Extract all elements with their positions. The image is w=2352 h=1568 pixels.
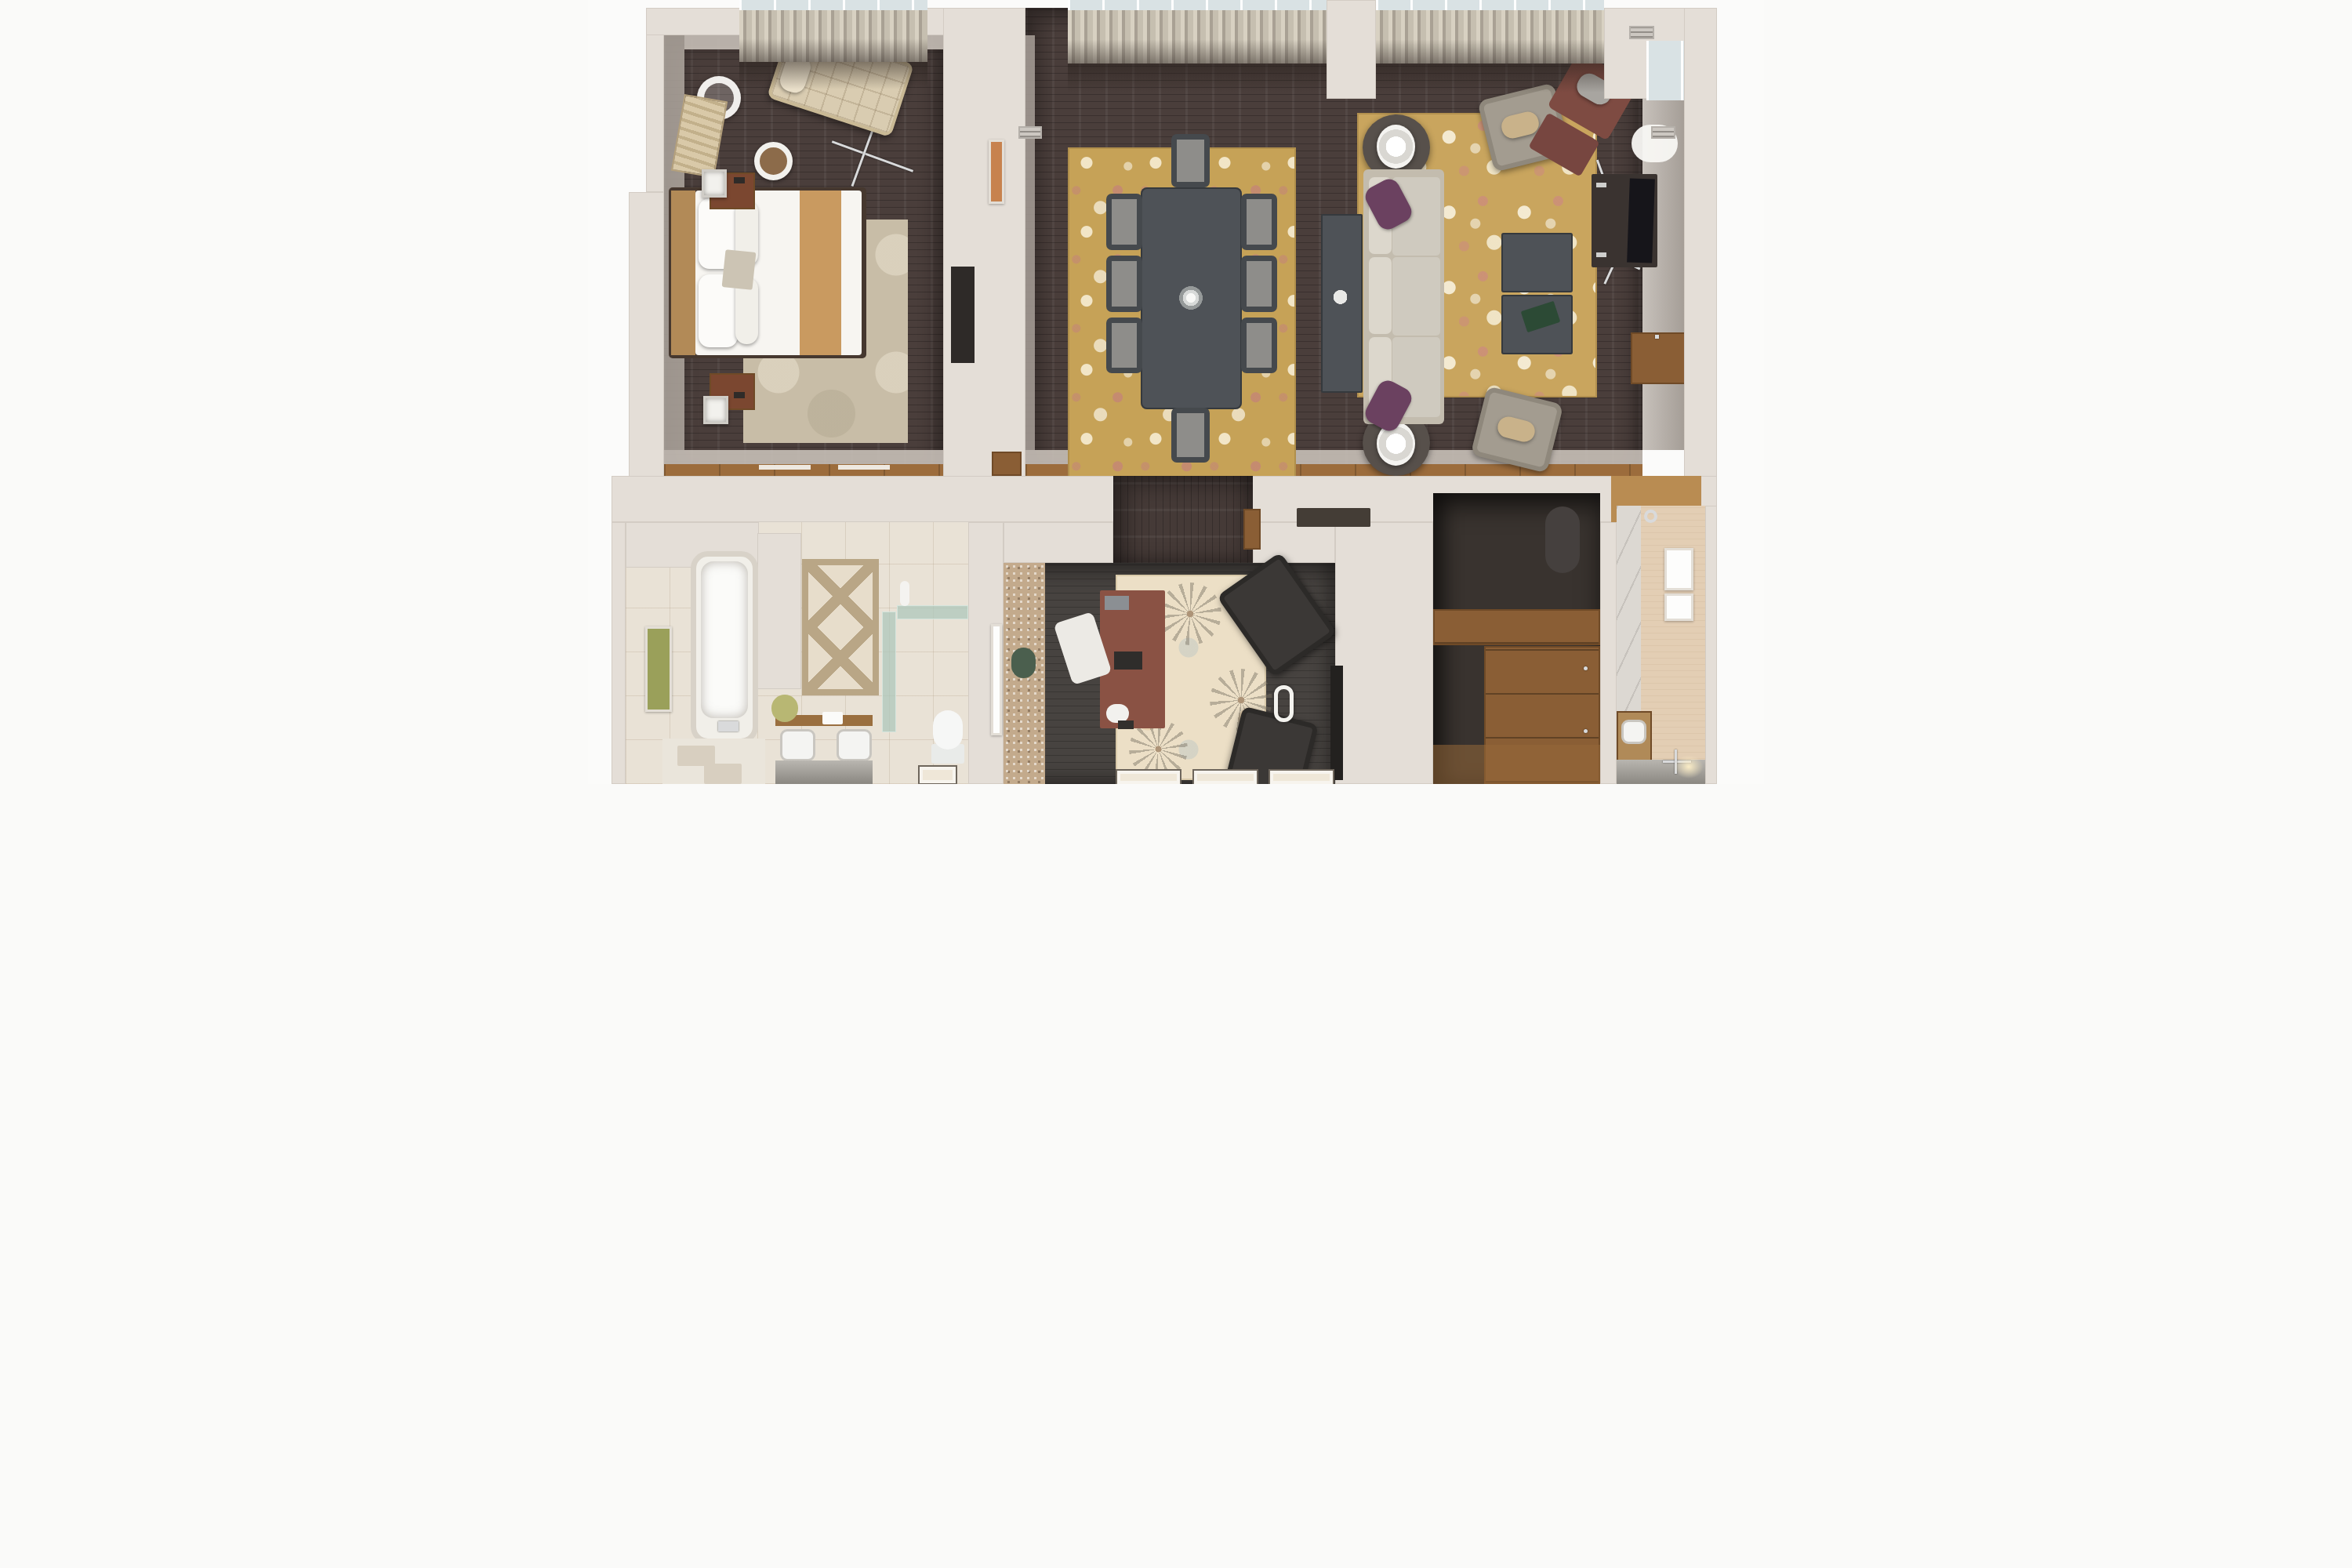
desk-photo-frame [1105,596,1129,610]
nightstand-deco-bottom [734,392,745,398]
tv-screen [1627,178,1655,263]
vanity-sink-2 [837,729,872,761]
nightstand-deco-top [734,177,745,183]
bath1-wall-art [645,626,672,712]
bath2-frame-2 [1664,593,1693,621]
curtains-dining [1068,10,1327,64]
right-wall-window [1646,41,1684,100]
closet-shelf [1433,609,1601,645]
tp-holder [900,581,909,606]
coffee-table-1 [1501,233,1573,292]
curtains-bedroom [739,10,927,62]
side-lamp-top [1377,125,1415,169]
dining-chair-left-2 [1106,256,1142,312]
wall-bedroom-dining [943,8,1025,477]
vanity-tray-2 [704,764,742,784]
bath2-towel-ring [1644,510,1657,523]
wall-bedroom-left-upper [646,8,664,192]
table-lamp-bottom [703,396,728,424]
air-vent-1 [1018,126,1042,139]
bath1-partition-wall [757,533,801,689]
toilet-mat [920,767,956,783]
office-mat-3 [1270,771,1333,785]
hallway-floor [1113,476,1253,564]
floor-plan-canvas [588,0,1764,784]
office-mat-1 [1117,771,1180,785]
curtain-shadow-bedroom [739,62,927,89]
wall-cabinet-handle [1655,335,1659,339]
sofa-seat-2 [1392,257,1440,336]
bedroom-door-leaf-2 [838,465,890,470]
desk-lamp-base [1118,720,1134,729]
dining-chair-head-top [1171,134,1210,188]
bedroom-wall-tv [951,267,975,363]
wall-bath2-right [1705,506,1717,784]
wall-closet-bath2 [1600,522,1617,784]
closet-knob-1 [1584,666,1588,670]
wall-office-top-left [1004,522,1113,563]
bath1-bucket [771,695,798,722]
wall-office-closet [1335,522,1433,784]
wall-bedroom-left-lower [629,192,664,477]
dining-chair-right-3 [1241,318,1277,373]
curtains-living [1376,10,1605,64]
tray-side-table [754,142,793,180]
sofa-back-cushion-2 [1369,257,1392,334]
shower-glass-v [882,612,896,732]
hall-cabinet [1243,509,1261,550]
desk-tablet [1114,652,1142,670]
closet-disc [1545,506,1580,573]
bathtub-basin [701,561,748,718]
wall-office-top-right [1253,522,1335,563]
dining-wall-art [989,140,1004,204]
bath2-frame-1 [1664,548,1693,590]
office-wall-art [991,624,1002,735]
dining-chair-right-2 [1241,256,1277,312]
dining-chair-head-bottom [1171,408,1210,463]
vanity-towels [822,712,843,724]
tub-faucet [718,721,739,731]
bath2-wall-lamp-glow [1674,755,1704,779]
toilet-bowl [933,710,963,750]
wall-top-pier [1327,0,1376,99]
console-speaker-1 [1596,183,1606,187]
wall-cabinet-right [1631,332,1686,384]
bedroom-door-leaf-1 [759,465,811,470]
dining-chair-left-1 [1106,194,1142,250]
office-side-table [1274,685,1294,722]
bed-camel-stripe [800,191,841,355]
office-green-pot [1011,648,1036,678]
curtain-shadow-living [1376,64,1605,93]
floor-niche [1297,508,1370,527]
curtain-shadow-dining [1068,64,1327,93]
closet-knob-2 [1584,729,1588,733]
open-wall-face-left [1025,35,1036,450]
air-vent-2 [1651,126,1675,139]
bedroom-wall-face-bottom [664,450,943,464]
table-lamp-top [702,169,727,198]
vanity-sink-1 [780,729,815,761]
bath1-lattice-floor [802,559,879,695]
divider-moon-deco [1330,289,1347,307]
console-speaker-2 [1596,252,1606,257]
bed-accent-cushion [721,249,756,290]
office-mat-2 [1194,771,1257,785]
bath2-sink [1621,720,1646,744]
wall-right [1684,8,1718,477]
dining-chair-right-1 [1241,194,1277,250]
office-mum-3 [1129,720,1188,779]
dining-centerpiece [1176,283,1206,313]
closet-floor-wood [1433,745,1601,784]
air-vent-3 [1629,26,1654,39]
dining-sideboard [992,452,1022,476]
wall-bath-left [612,522,626,784]
office-tv-panel [1330,666,1343,780]
dining-chair-left-3 [1106,318,1142,373]
office-mum-1 [1159,583,1221,645]
bed-headboard [671,191,695,355]
shower-glass-h [897,605,968,619]
vanity-mirror-strip [775,760,873,784]
